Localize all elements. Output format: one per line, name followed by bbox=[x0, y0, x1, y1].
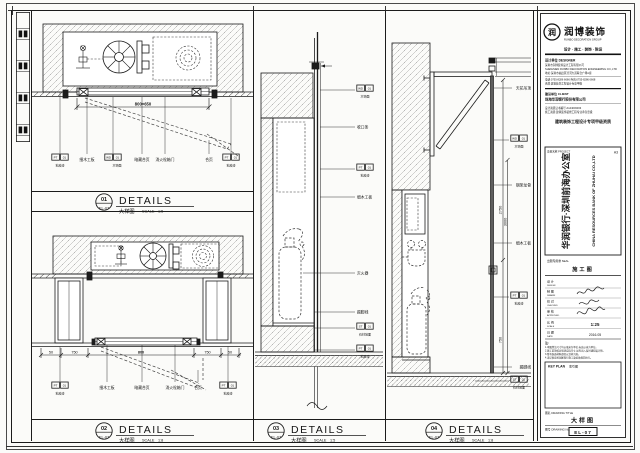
detail-04-section-drawing: WD01 PT01 ST01 木饰面 乳胶漆 石材地面 天花吊顶 钢架龙骨 细木… bbox=[385, 10, 533, 419]
svg-text:APPROVED: APPROVED bbox=[547, 314, 560, 317]
panel-face-lines bbox=[491, 76, 494, 373]
svg-text:1.本图所注尺寸均以毫米为单位,标高以米为单位。: 1.本图所注尺寸均以毫米为单位,标高以米为单位。 bbox=[545, 345, 598, 349]
top-connection bbox=[489, 58, 531, 77]
door-jamb-right bbox=[203, 278, 231, 343]
detail-label-03: 03 EL-07 DETAILS 大样图 SCALE 1:5 bbox=[266, 420, 378, 444]
client-value: 珠海华润银行股份有限公司 bbox=[545, 97, 586, 102]
sheet-ref: EL-07 bbox=[271, 436, 281, 440]
svg-text:01: 01 bbox=[522, 137, 526, 141]
tag-texts: WD01 PT01 ST01 木饰面 乳胶漆 石材地面 bbox=[512, 137, 525, 390]
svg-text:01: 01 bbox=[231, 384, 235, 388]
scale-value: 1:5 bbox=[158, 209, 163, 213]
cert-line: 建筑装饰工程设计专项甲级资质 bbox=[555, 118, 611, 124]
svg-text:3.所有饰面材料颜色以封样为准。: 3.所有饰面材料颜色以封样为准。 bbox=[545, 352, 580, 356]
ceiling-ticks bbox=[34, 274, 249, 277]
detail-number: 02 bbox=[101, 426, 107, 432]
svg-text:施工资质:建筑装饰装修工程专业承包壹级: 施工资质:建筑装饰装修工程专业承包壹级 bbox=[545, 110, 593, 114]
stage-value: 施工图 bbox=[572, 265, 594, 273]
scale-word: SCALE bbox=[472, 438, 485, 442]
svg-text:细木工板: 细木工板 bbox=[99, 385, 114, 390]
svg-text:PT: PT bbox=[513, 294, 517, 298]
tag-caption: 乳胶漆 bbox=[514, 301, 523, 306]
svg-text:DESIGN: DESIGN bbox=[547, 285, 556, 287]
callout-texts: 细木工板 暗藏合页 消火栓箱门 合页 bbox=[99, 385, 202, 390]
svg-text:01: 01 bbox=[522, 294, 526, 298]
panel-face-lines bbox=[315, 32, 321, 352]
details-cn: 大样图 bbox=[119, 207, 135, 215]
svg-text:地址:深圳市福田区滨河大道联合广场A座: 地址:深圳市福田区滨河大道联合广场A座 bbox=[545, 71, 592, 75]
svg-text:细木工板: 细木工板 bbox=[516, 241, 531, 246]
svg-text:PT: PT bbox=[54, 156, 58, 160]
detail-02-plan-drawing: 50 750 800 750 50 PT01 PT01 乳胶漆 乳胶漆 细木工板… bbox=[31, 212, 253, 419]
svg-text:DRAWN: DRAWN bbox=[547, 294, 556, 297]
svg-text:PT: PT bbox=[54, 384, 58, 388]
tag-caption: 木饰面 bbox=[514, 144, 523, 149]
scale-label: 比 例 bbox=[547, 320, 554, 325]
tag-caption: 木饰面 bbox=[360, 94, 369, 99]
dimension-text: 800×650 bbox=[135, 102, 152, 107]
cabinet-recess bbox=[402, 190, 428, 357]
date-value: 2016.05 bbox=[589, 333, 601, 337]
drawing-sheet: PT01 WD01 PT01 乳胶漆 木饰面 乳胶漆 细木工板 暗藏合页 消火栓… bbox=[0, 0, 640, 453]
scale-value: 1:25 bbox=[591, 322, 600, 327]
sheet-ref: EL-07 bbox=[99, 436, 109, 440]
cabinet-recess bbox=[63, 32, 217, 86]
detail-label-04: 04 EL-07 DETAILS 大样图 SCALE 1:8 bbox=[424, 420, 536, 444]
details-cn: 大样图 bbox=[291, 436, 307, 444]
svg-text:设 计: 设 计 bbox=[547, 279, 554, 284]
svg-text:01: 01 bbox=[522, 378, 526, 382]
below-floor-break bbox=[307, 367, 327, 410]
svg-text:KEY PLAN: KEY PLAN bbox=[548, 365, 566, 369]
svg-text:2750: 2750 bbox=[499, 206, 503, 214]
floor-hatch bbox=[387, 377, 529, 387]
svg-text:01: 01 bbox=[63, 156, 67, 160]
svg-text:01: 01 bbox=[368, 166, 372, 170]
scale-word: SCALE bbox=[142, 438, 155, 442]
svg-text:ST: ST bbox=[513, 378, 517, 382]
svg-text:钢架龙骨: 钢架龙骨 bbox=[516, 183, 531, 188]
svg-text:灭火器: 灭火器 bbox=[357, 271, 369, 276]
drawing-no-value: EL-07 bbox=[574, 430, 592, 435]
svg-text:01: 01 bbox=[368, 325, 372, 329]
svg-text:PT: PT bbox=[359, 166, 363, 170]
details-title: DETAILS bbox=[119, 424, 172, 436]
door-jamb-left bbox=[55, 278, 83, 343]
scale-label-en: SCALE bbox=[547, 325, 555, 328]
svg-text:PT: PT bbox=[359, 347, 363, 351]
tag-caption: 乳胶漆 bbox=[360, 173, 369, 178]
details-title: DETAILS bbox=[291, 424, 344, 436]
key-plan-box: KEY PLAN 索引图 bbox=[545, 362, 621, 408]
tag-caption: 乳胶漆 bbox=[55, 163, 64, 168]
detail-01-plan-drawing: PT01 WD01 PT01 乳胶漆 木饰面 乳胶漆 细木工板 暗藏合页 消火栓… bbox=[31, 10, 253, 191]
tag-caption: 石材地面 bbox=[359, 332, 371, 337]
drawing-no-label: 图号 DRAWING No. bbox=[545, 428, 570, 432]
detail-number: 04 bbox=[431, 426, 438, 432]
svg-text:50: 50 bbox=[49, 351, 53, 355]
sheet-size: A3 bbox=[614, 151, 618, 155]
svg-text:WD: WD bbox=[358, 87, 364, 91]
svg-text:电话:0755-8286 6666 传真:0755-828: 电话:0755-8286 6666 传真:0755-8286 6668 bbox=[545, 78, 596, 82]
svg-text:设计资质证书编号:A144003333: 设计资质证书编号:A144003333 bbox=[545, 106, 582, 110]
revision-strip bbox=[16, 12, 30, 142]
drawing-title-label: 图名 DRAWING TITLE bbox=[545, 411, 573, 415]
svg-text:合页: 合页 bbox=[205, 157, 213, 162]
svg-text:01: 01 bbox=[368, 347, 372, 351]
company-brand: 润博装饰 bbox=[564, 26, 606, 38]
svg-text:审 核: 审 核 bbox=[547, 309, 554, 314]
notes-header: 注: bbox=[545, 340, 549, 345]
company-brand-en: RUNBO DECORATION GROUP bbox=[564, 38, 602, 42]
sheet-ref: EL-07 bbox=[99, 207, 109, 211]
wall-brace bbox=[424, 72, 492, 156]
scale-word: SCALE bbox=[314, 438, 327, 442]
date-label-en: DATE bbox=[547, 335, 553, 338]
wall-hatch bbox=[392, 43, 430, 190]
tag-caption: 乳胶漆 bbox=[223, 391, 232, 396]
svg-text:800: 800 bbox=[138, 351, 144, 355]
svg-text:暗藏合页: 暗藏合页 bbox=[134, 385, 149, 390]
svg-text:深圳市润博装饰设计工程有限公司: 深圳市润博装饰设计工程有限公司 bbox=[545, 63, 584, 67]
bottom-rule bbox=[6, 446, 633, 447]
svg-text:消火栓箱门: 消火栓箱门 bbox=[156, 157, 175, 162]
project-name-cn: 华润银行·深圳前海办公室 bbox=[561, 152, 571, 249]
top-fixing-block bbox=[312, 63, 319, 69]
scale-word: SCALE bbox=[142, 209, 155, 213]
svg-text:750: 750 bbox=[71, 351, 77, 355]
finish-tags bbox=[511, 135, 527, 382]
svg-text:消火栓箱门: 消火栓箱门 bbox=[166, 385, 185, 390]
titleblock-divider-outer bbox=[533, 10, 534, 441]
svg-text:合页: 合页 bbox=[194, 385, 202, 390]
scale-value: 1:8 bbox=[488, 438, 493, 442]
designer-header: 设计单位 DESIGNER bbox=[545, 58, 576, 63]
svg-text:细木工板: 细木工板 bbox=[357, 195, 372, 200]
detail-label-02: 02 EL-07 DETAILS 大样图 SCALE 1:8 bbox=[94, 420, 206, 444]
tag-caption: 石材地面 bbox=[513, 385, 525, 390]
title-block: 润 润博装饰 RUNBO DECORATION GROUP 设计 · 施工 · … bbox=[537, 10, 629, 441]
svg-text:资质:建筑装饰工程设计专项甲级: 资质:建筑装饰工程设计专项甲级 bbox=[545, 82, 582, 86]
wall-hatch bbox=[261, 73, 313, 118]
svg-text:01: 01 bbox=[116, 156, 120, 160]
detail-label-01: 01 EL-07 DETAILS 大样图 SCALE 1:5 bbox=[94, 191, 206, 215]
drawing-title-value: 大样图 bbox=[571, 417, 595, 425]
svg-text:01: 01 bbox=[63, 384, 67, 388]
svg-text:SHENZHEN RUNBO DECORATION ENGI: SHENZHEN RUNBO DECORATION ENGINEERING CO… bbox=[545, 67, 617, 71]
svg-text:ST: ST bbox=[359, 325, 363, 329]
svg-text:制 图: 制 图 bbox=[547, 289, 554, 294]
dimension-values: 50 750 800 750 50 bbox=[49, 351, 232, 355]
svg-text:50: 50 bbox=[228, 351, 232, 355]
tag-caption: 乳胶漆 bbox=[55, 391, 64, 396]
svg-text:踢脚线: 踢脚线 bbox=[520, 365, 532, 370]
tag-caption: 乳胶漆 bbox=[226, 163, 235, 168]
svg-text:PT: PT bbox=[225, 156, 229, 160]
door-swing-dashed bbox=[101, 347, 206, 390]
svg-text:01: 01 bbox=[368, 87, 372, 91]
sheet-ref: EL-07 bbox=[429, 436, 439, 440]
project-name-box: 项目名称 PROJECT A3 华润银行·深圳前海办公室 CHINA RESOU… bbox=[545, 147, 621, 255]
svg-text:天花吊顶: 天花吊顶 bbox=[516, 86, 531, 91]
detail-number: 01 bbox=[101, 197, 107, 203]
svg-text:WD: WD bbox=[106, 156, 112, 160]
svg-text:750: 750 bbox=[204, 351, 210, 355]
svg-text:750: 750 bbox=[499, 337, 503, 343]
detail-03-section-drawing: WD01 PT01 ST01 PT01 木饰面 乳胶漆 石材地面 乳胶漆 收口条… bbox=[253, 10, 385, 419]
svg-text:4.未尽事宜按国家现行施工及验收规范执行。: 4.未尽事宜按国家现行施工及验收规范执行。 bbox=[545, 356, 592, 360]
stage-label: 出图专用章 SEAL bbox=[547, 259, 569, 263]
svg-text:2.施工前须核对现场实际尺寸,如有出入及时通知设计师。: 2.施工前须核对现场实际尺寸,如有出入及时通知设计师。 bbox=[545, 349, 605, 353]
svg-text:踢脚线: 踢脚线 bbox=[357, 310, 369, 315]
details-cn: 大样图 bbox=[119, 436, 135, 444]
svg-text:3000: 3000 bbox=[504, 218, 508, 226]
tag-caption: 乳胶漆 bbox=[360, 354, 369, 359]
tag-caption: 木饰面 bbox=[112, 163, 121, 168]
svg-text:WD: WD bbox=[512, 137, 518, 141]
svg-text:01: 01 bbox=[234, 156, 238, 160]
project-name-en: CHINA RESOURCES BANK OF ZHUHAI CO.,LTD bbox=[591, 155, 596, 246]
svg-text:细木工板: 细木工板 bbox=[79, 157, 94, 162]
svg-text:索引图: 索引图 bbox=[569, 364, 578, 369]
details-title: DETAILS bbox=[119, 195, 172, 207]
company-tagline: 设计 · 施工 · 装饰 · 陈设 bbox=[564, 47, 603, 52]
detail-number: 03 bbox=[273, 426, 279, 432]
callout-texts: 收口条 细木工板 灭火器 踢脚线 bbox=[357, 125, 372, 315]
callout-texts: 细木工板 暗藏合页 消火栓箱门 合页 bbox=[79, 157, 213, 162]
svg-text:校 对: 校 对 bbox=[547, 299, 554, 304]
svg-text:暗藏合页: 暗藏合页 bbox=[134, 157, 149, 162]
client-label: 建设单位 CLIENT bbox=[545, 91, 569, 96]
svg-text:润: 润 bbox=[548, 27, 556, 37]
callout-texts: 天花吊顶 钢架龙骨 细木工板 踢脚线 bbox=[516, 86, 531, 370]
details-cn: 大样图 bbox=[449, 436, 465, 444]
details-title: DETAILS bbox=[449, 424, 502, 436]
svg-text:收口条: 收口条 bbox=[357, 125, 369, 130]
scale-value: 1:8 bbox=[158, 438, 163, 442]
svg-text:PT: PT bbox=[222, 384, 226, 388]
scale-value: 1:5 bbox=[330, 438, 335, 442]
svg-text:CHECKED: CHECKED bbox=[547, 305, 558, 307]
date-label: 日 期 bbox=[547, 330, 554, 335]
